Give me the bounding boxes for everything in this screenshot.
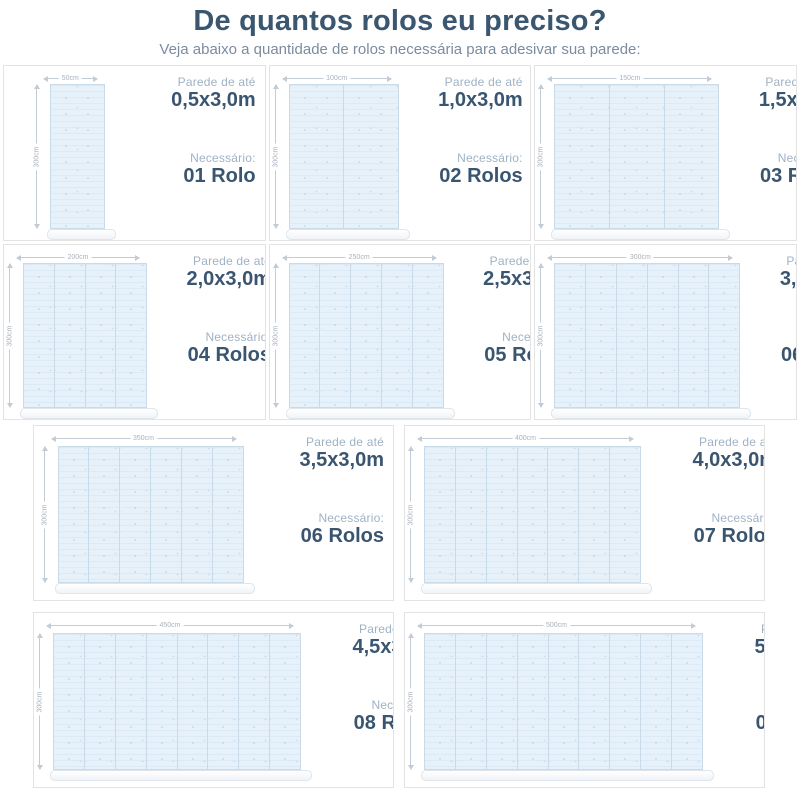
roll-panel: 200cm 300cm Parede de até 2,0x3,0m xyxy=(3,244,266,420)
wall-strip xyxy=(549,634,580,769)
wall-illustration: 100cm 300cm xyxy=(270,66,406,240)
wallpaper-roll xyxy=(551,408,751,419)
width-dimension-arrow: 400cm xyxy=(417,433,634,445)
wall-strip xyxy=(425,447,456,582)
width-dimension-label: 300cm xyxy=(627,252,654,263)
wall-size-value: 4,0x3,0m xyxy=(648,449,765,472)
wall-strip xyxy=(548,447,579,582)
wall-strip xyxy=(672,634,702,769)
height-dimension-label: 300cm xyxy=(538,322,545,349)
wall-strip xyxy=(425,634,456,769)
wall-wrap xyxy=(547,84,726,240)
panel-row: 200cm 300cm Parede de até 2,0x3,0m xyxy=(3,244,797,420)
header: De quantos rolos eu preciso? Veja abaixo… xyxy=(0,0,800,58)
wall-size-label: Parede de até xyxy=(451,254,532,268)
wallpaper-roll xyxy=(20,408,158,419)
needed-label: Necessário: xyxy=(726,151,797,165)
wallpaper-roll xyxy=(286,408,455,419)
wall-strip xyxy=(151,447,182,582)
height-dimension-label: 300cm xyxy=(7,322,14,349)
wall-figure: 350cm 300cm xyxy=(39,433,251,600)
height-dimension-arrow: 300cm xyxy=(405,446,417,583)
height-dimension-arrow: 300cm xyxy=(4,263,16,408)
rolls-needed-value: 01 Rolo xyxy=(139,165,256,188)
wall-size-block: Parede de até 3,5x3,0m xyxy=(255,435,384,472)
needed-label: Necessário: xyxy=(139,151,256,165)
panel-info: Parede de até 0,5x3,0m Necessário: 01 Ro… xyxy=(139,66,265,240)
wall-strip xyxy=(89,447,120,582)
panel-info: Parede de até 2,5x3,0m Necessário: 05 Ro… xyxy=(451,245,532,419)
roll-panel: 150cm 300cm Parede de até 1,5x3,0m xyxy=(534,65,797,241)
wall-illustration: 150cm 300cm xyxy=(535,66,726,240)
wall-strip xyxy=(665,85,719,228)
needed-label: Necessário: xyxy=(154,330,266,344)
wall-strip xyxy=(382,264,413,407)
needed-label: Necessário: xyxy=(747,330,797,344)
rolls-needed-value: 08 Rolos xyxy=(308,712,394,735)
wall-strip xyxy=(413,264,443,407)
page-title: De quantos rolos eu preciso? xyxy=(0,5,800,38)
rolls-needed-block: Necessário: 06 Rolos xyxy=(255,511,384,548)
height-dimension-arrow: 300cm xyxy=(270,263,282,408)
wall-strip xyxy=(178,634,209,769)
width-dimension-label: 50cm xyxy=(59,73,82,84)
wall-size-value: 5,0x3,0m xyxy=(710,636,765,659)
height-dimension-label: 300cm xyxy=(41,501,48,528)
rolls-needed-block: Necessário: 09 Rolos xyxy=(710,698,765,735)
wall-wrap xyxy=(282,84,406,240)
wall-figure: 300cm 300cm xyxy=(535,252,747,419)
panel-row: 50cm 300cm Parede de até 0,5x3,0m xyxy=(3,65,797,241)
panel-info: Parede de até 2,0x3,0m Necessário: 04 Ro… xyxy=(154,245,266,419)
wall-strip xyxy=(290,264,321,407)
width-dimension-label: 100cm xyxy=(323,73,350,84)
width-dimension-arrow: 100cm xyxy=(282,73,392,83)
rolls-needed-block: Necessário: 04 Rolos xyxy=(154,330,266,367)
rolls-needed-block: Necessário: 02 Rolos xyxy=(406,151,523,188)
height-dimension-label: 300cm xyxy=(538,143,545,170)
wall-strip xyxy=(487,634,518,769)
wall-strip xyxy=(86,264,117,407)
height-dimension-arrow: 300cm xyxy=(34,633,46,770)
wall-strip xyxy=(116,264,146,407)
wallpaper-roll xyxy=(47,229,116,240)
wall-strip xyxy=(55,264,86,407)
rolls-needed-value: 06 Rolos xyxy=(747,344,797,367)
wall-strip xyxy=(487,447,518,582)
wallpaper-roll xyxy=(421,770,714,781)
rolls-needed-value: 06 Rolos xyxy=(255,525,384,548)
wall-strip xyxy=(555,85,610,228)
wall-strip xyxy=(586,264,617,407)
width-dimension-arrow: 500cm xyxy=(417,620,696,632)
wall-illustration: 200cm 300cm xyxy=(4,245,154,419)
rolls-needed-block: Necessário: 07 Rolos xyxy=(648,511,765,548)
wall-size-label: Parede de até xyxy=(154,254,266,268)
wall-figure: 150cm 300cm xyxy=(535,73,726,240)
roll-panel: 250cm 300cm Parede de até 2,5x3,0m xyxy=(269,244,532,420)
height-dimension-label: 300cm xyxy=(408,501,415,528)
wallpaper-roll xyxy=(421,583,652,594)
width-dimension-arrow: 350cm xyxy=(51,433,237,445)
roll-panel: 450cm 300cm Parede de até 4,5x3,0m xyxy=(33,612,394,788)
wall-strip xyxy=(579,447,610,582)
wall-strip xyxy=(147,634,178,769)
panel-row: 450cm 300cm Parede de até 4,5x3,0m xyxy=(33,612,765,788)
width-dimension-arrow: 250cm xyxy=(282,252,437,262)
panel-info: Parede de até 1,5x3,0m Necessário: 03 Ro… xyxy=(726,66,797,240)
wall-strip xyxy=(290,85,345,228)
rolls-needed-block: Necessário: 08 Rolos xyxy=(308,698,394,735)
wall-size-label: Parede de até xyxy=(747,254,797,268)
wall-strip xyxy=(320,264,351,407)
width-dimension-arrow: 200cm xyxy=(16,252,140,262)
width-dimension-label: 150cm xyxy=(616,73,643,84)
wall-strip xyxy=(116,634,147,769)
wall-size-block: Parede de até 0,5x3,0m xyxy=(139,75,256,112)
wall-size-block: Parede de até 2,5x3,0m xyxy=(451,254,532,291)
panel-info: Parede de até 3,5x3,0m Necessário: 06 Ro… xyxy=(255,426,393,600)
wall-size-block: Parede de até 3,0x3,0m xyxy=(747,254,797,291)
wall-strip xyxy=(641,634,672,769)
roll-panel: 100cm 300cm Parede de até 1,0x3,0m xyxy=(269,65,532,241)
wall-size-block: Parede de até 5,0x3,0m xyxy=(710,622,765,659)
rolls-needed-value: 07 Rolos xyxy=(648,525,765,548)
wall-size-value: 0,5x3,0m xyxy=(139,89,256,112)
height-dimension-label: 300cm xyxy=(272,322,279,349)
wall-size-value: 4,5x3,0m xyxy=(308,636,394,659)
wall-wrap xyxy=(43,84,112,240)
page-subtitle: Veja abaixo a quantidade de rolos necess… xyxy=(0,41,800,58)
height-dimension-label: 300cm xyxy=(408,688,415,715)
wall-strip xyxy=(24,264,55,407)
wall-strip xyxy=(610,85,665,228)
wall-illustration: 350cm 300cm xyxy=(34,426,255,600)
wall-strip xyxy=(85,634,116,769)
wall-strip xyxy=(182,447,213,582)
wall-strip xyxy=(518,634,549,769)
wall-strip xyxy=(213,447,243,582)
width-dimension-label: 450cm xyxy=(156,620,183,631)
wall-wrap xyxy=(282,263,451,419)
width-dimension-arrow: 450cm xyxy=(46,620,294,632)
wall-size-block: Parede de até 4,5x3,0m xyxy=(308,622,394,659)
wall-size-block: Parede de até 4,0x3,0m xyxy=(648,435,765,472)
rolls-needed-block: Necessário: 06 Rolos xyxy=(747,330,797,367)
roll-panel: 300cm 300cm Parede de até 3,0x3,0m xyxy=(534,244,797,420)
wall-strip xyxy=(555,264,586,407)
wall-size-block: Parede de até 1,0x3,0m xyxy=(406,75,523,112)
panel-info: Parede de até 4,0x3,0m Necessário: 07 Ro… xyxy=(648,426,765,600)
wall-strips xyxy=(424,633,703,770)
wall-figure: 200cm 300cm xyxy=(4,252,154,419)
roll-panel: 350cm 300cm Parede de até 3,5x3,0m xyxy=(33,425,394,601)
roll-panel: 50cm 300cm Parede de até 0,5x3,0m xyxy=(3,65,266,241)
height-dimension-label: 300cm xyxy=(33,143,40,170)
rolls-needed-value: 04 Rolos xyxy=(154,344,266,367)
height-dimension-label: 300cm xyxy=(37,688,44,715)
rolls-needed-value: 05 Rolos xyxy=(451,344,532,367)
wall-figure: 450cm 300cm xyxy=(34,620,308,787)
height-dimension-arrow: 300cm xyxy=(535,263,547,408)
width-dimension-label: 500cm xyxy=(543,620,570,631)
wall-illustration: 300cm 300cm xyxy=(535,245,747,419)
roll-panel: 400cm 300cm Parede de até 4,0x3,0m xyxy=(404,425,765,601)
height-dimension-arrow: 300cm xyxy=(270,84,282,229)
wallpaper-roll xyxy=(551,229,730,240)
panel-info: Parede de até 4,5x3,0m Necessário: 08 Ro… xyxy=(308,613,394,787)
wall-wrap xyxy=(46,633,308,781)
wall-strip xyxy=(120,447,151,582)
wall-strip xyxy=(51,85,104,228)
wall-strip xyxy=(709,264,739,407)
wall-strip xyxy=(679,264,710,407)
wall-strip xyxy=(610,634,641,769)
wall-size-label: Parede de até xyxy=(726,75,797,89)
wall-figure: 400cm 300cm xyxy=(405,433,648,600)
wall-size-label: Parede de até xyxy=(308,622,394,636)
rolls-needed-block: Necessário: 01 Rolo xyxy=(139,151,256,188)
wall-wrap xyxy=(417,446,648,594)
wall-strips xyxy=(554,84,719,229)
wall-strip xyxy=(351,264,382,407)
wall-strips xyxy=(289,84,399,229)
wall-strip xyxy=(59,447,90,582)
wallpaper-roll xyxy=(55,583,255,594)
wall-size-block: Parede de até 2,0x3,0m xyxy=(154,254,266,291)
panel-info: Parede de até 3,0x3,0m Necessário: 06 Ro… xyxy=(747,245,797,419)
wall-strip xyxy=(456,634,487,769)
needed-label: Necessário: xyxy=(451,330,532,344)
height-dimension-arrow: 300cm xyxy=(39,446,51,583)
width-dimension-arrow: 150cm xyxy=(547,73,712,83)
needed-label: Necessário: xyxy=(308,698,394,712)
needed-label: Necessário: xyxy=(710,698,765,712)
panel-row: 350cm 300cm Parede de até 3,5x3,0m xyxy=(33,425,765,601)
wall-strip xyxy=(648,264,679,407)
wall-illustration: 400cm 300cm xyxy=(405,426,648,600)
wall-illustration: 50cm 300cm xyxy=(4,66,139,240)
wall-strips xyxy=(53,633,301,770)
wall-strips xyxy=(23,263,147,408)
width-dimension-label: 350cm xyxy=(130,433,157,444)
wall-size-value: 3,5x3,0m xyxy=(255,449,384,472)
panels-grid: 50cm 300cm Parede de até 0,5x3,0m xyxy=(0,65,800,788)
wall-illustration: 500cm 300cm xyxy=(405,613,710,787)
wall-figure: 100cm 300cm xyxy=(270,73,406,240)
height-dimension-arrow: 300cm xyxy=(31,84,43,229)
wall-illustration: 450cm 300cm xyxy=(34,613,308,787)
needed-label: Necessário: xyxy=(648,511,765,525)
rolls-needed-value: 02 Rolos xyxy=(406,165,523,188)
wall-strip xyxy=(54,634,85,769)
rolls-needed-value: 03 Rolos xyxy=(726,165,797,188)
width-dimension-arrow: 50cm xyxy=(43,73,98,83)
wall-strips xyxy=(289,263,444,408)
wall-strip xyxy=(617,264,648,407)
wall-size-block: Parede de até 1,5x3,0m xyxy=(726,75,797,112)
wall-figure: 250cm 300cm xyxy=(270,252,451,419)
wall-size-label: Parede de até xyxy=(710,622,765,636)
height-dimension-arrow: 300cm xyxy=(405,633,417,770)
wall-strip xyxy=(239,634,270,769)
wall-figure: 50cm 300cm xyxy=(31,73,112,240)
wall-strips xyxy=(58,446,244,583)
needed-label: Necessário: xyxy=(406,151,523,165)
panel-info: Parede de até 5,0x3,0m Necessário: 09 Ro… xyxy=(710,613,765,787)
infographic-page: De quantos rolos eu preciso? Veja abaixo… xyxy=(0,0,800,800)
width-dimension-label: 400cm xyxy=(512,433,539,444)
wall-wrap xyxy=(417,633,710,781)
height-dimension-arrow: 300cm xyxy=(535,84,547,229)
wall-wrap xyxy=(16,263,154,419)
panel-info: Parede de até 1,0x3,0m Necessário: 02 Ro… xyxy=(406,66,532,240)
roll-panel: 500cm 300cm Parede de até 5,0x3,0m xyxy=(404,612,765,788)
rolls-needed-block: Necessário: 05 Rolos xyxy=(451,330,532,367)
wall-size-value: 1,0x3,0m xyxy=(406,89,523,112)
rolls-needed-block: Necessário: 03 Rolos xyxy=(726,151,797,188)
wall-size-label: Parede de até xyxy=(139,75,256,89)
width-dimension-label: 200cm xyxy=(64,252,91,263)
wall-wrap xyxy=(51,446,251,594)
wallpaper-roll xyxy=(286,229,410,240)
wall-size-label: Parede de até xyxy=(648,435,765,449)
width-dimension-label: 250cm xyxy=(346,252,373,263)
wall-strip xyxy=(456,447,487,582)
wall-strip xyxy=(344,85,398,228)
wall-strips xyxy=(50,84,105,229)
wall-size-value: 3,0x3,0m xyxy=(747,268,797,291)
wall-strip xyxy=(610,447,640,582)
wall-strip xyxy=(579,634,610,769)
height-dimension-label: 300cm xyxy=(272,143,279,170)
needed-label: Necessário: xyxy=(255,511,384,525)
wall-strip xyxy=(518,447,549,582)
wall-size-value: 1,5x3,0m xyxy=(726,89,797,112)
wall-wrap xyxy=(547,263,747,419)
wall-size-label: Parede de até xyxy=(255,435,384,449)
wall-figure: 500cm 300cm xyxy=(405,620,710,787)
wall-strip xyxy=(270,634,300,769)
wall-size-value: 2,0x3,0m xyxy=(154,268,266,291)
rolls-needed-value: 09 Rolos xyxy=(710,712,765,735)
wallpaper-roll xyxy=(50,770,312,781)
wall-strips xyxy=(554,263,740,408)
wall-size-value: 2,5x3,0m xyxy=(451,268,532,291)
wall-strip xyxy=(208,634,239,769)
wall-illustration: 250cm 300cm xyxy=(270,245,451,419)
wall-strips xyxy=(424,446,641,583)
width-dimension-arrow: 300cm xyxy=(547,252,733,262)
wall-size-label: Parede de até xyxy=(406,75,523,89)
